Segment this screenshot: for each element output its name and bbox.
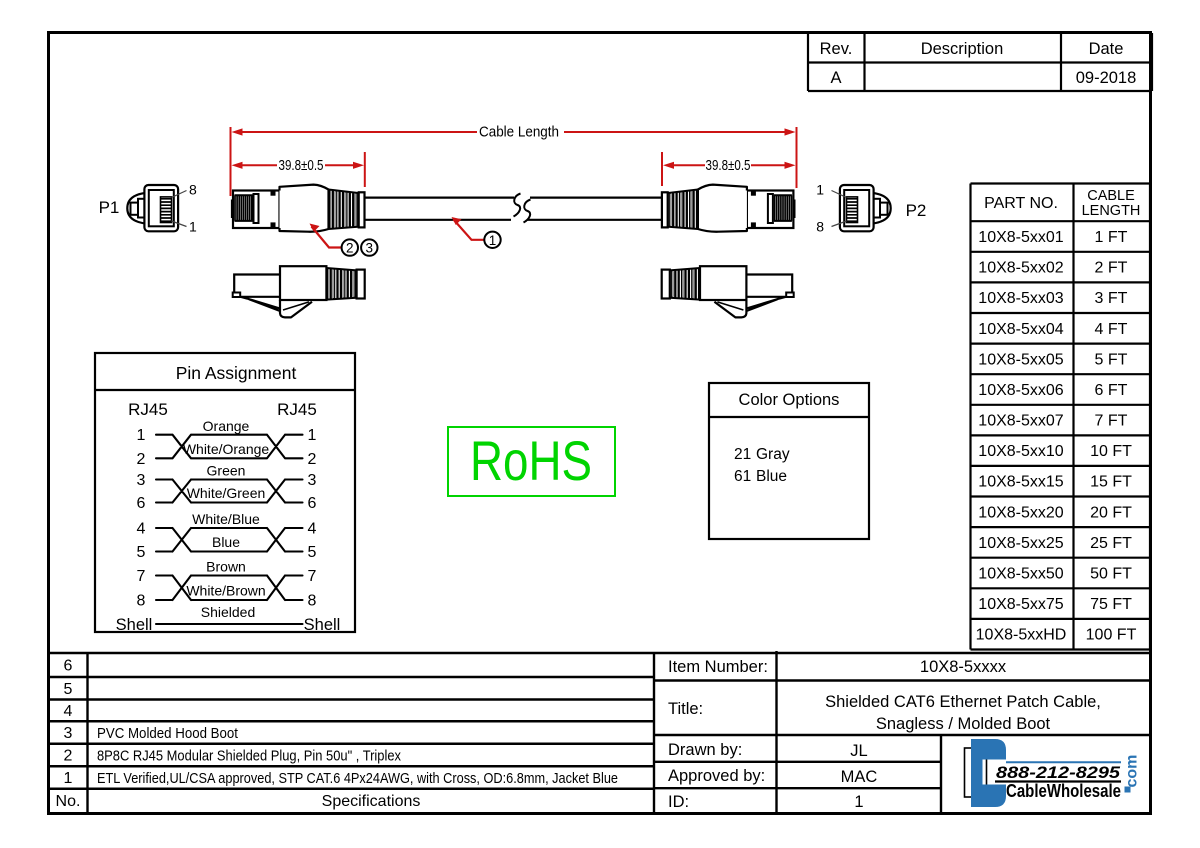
svg-text:10X8-5xx05: 10X8-5xx05 [978,351,1063,368]
svg-text:5 FT: 5 FT [1095,351,1128,368]
svg-text:White/Orange: White/Orange [183,441,270,457]
svg-text:6: 6 [64,658,73,675]
svg-text:5: 5 [308,544,317,561]
svg-text:888-212-8295: 888-212-8295 [996,764,1121,782]
svg-text:ID:: ID: [668,793,689,811]
svg-text:Gray: Gray [756,446,790,463]
svg-text:PVC Molded Hood Boot: PVC Molded Hood Boot [97,725,239,742]
svg-text:10X8-5xx25: 10X8-5xx25 [978,535,1063,552]
svg-text:Shielded CAT6 Ethernet Patch C: Shielded CAT6 Ethernet Patch Cable, [825,693,1101,711]
svg-text:61: 61 [734,468,751,485]
svg-text:10X8-5xx75: 10X8-5xx75 [978,596,1063,613]
svg-text:Drawn by:: Drawn by: [668,741,742,759]
svg-text:MAC: MAC [841,768,878,786]
svg-text:6: 6 [137,495,146,512]
svg-text:21: 21 [734,446,751,463]
svg-text:A: A [830,69,841,87]
svg-text:RJ45: RJ45 [277,400,317,419]
svg-text:10X8-5xx01: 10X8-5xx01 [978,229,1063,246]
svg-text:RoHS: RoHS [470,429,592,492]
svg-text:8: 8 [308,593,317,610]
svg-text:39.8±0.5: 39.8±0.5 [279,158,324,174]
svg-text:White/Brown: White/Brown [186,583,265,599]
svg-text:2: 2 [346,241,354,256]
svg-text:8: 8 [189,182,197,198]
svg-text:P2: P2 [906,201,927,220]
svg-text:Snagless / Molded Boot: Snagless / Molded Boot [876,715,1051,733]
svg-text:Orange: Orange [203,418,250,434]
svg-text:White/Green: White/Green [187,485,266,501]
svg-text:1: 1 [816,182,824,198]
svg-text:20 FT: 20 FT [1090,504,1132,521]
svg-text:2: 2 [308,451,317,468]
svg-text:JL: JL [850,742,867,760]
svg-text:8: 8 [137,593,146,610]
svg-text:Description: Description [921,40,1004,58]
svg-text:1: 1 [137,427,146,444]
svg-text:Color Options: Color Options [739,391,840,409]
svg-text:4: 4 [308,521,317,538]
svg-text:Green: Green [207,463,246,479]
svg-text:No.: No. [56,793,81,810]
svg-text:4 FT: 4 FT [1095,321,1128,338]
svg-text:Shell: Shell [116,616,153,634]
svg-text:Rev.: Rev. [820,40,853,58]
svg-text:10X8-5xx20: 10X8-5xx20 [978,504,1063,521]
svg-text:10X8-5xx02: 10X8-5xx02 [978,260,1063,277]
svg-text:10X8-5xxHD: 10X8-5xxHD [976,627,1067,644]
svg-text:CableWholesale: CableWholesale [1006,781,1121,801]
svg-text:3 FT: 3 FT [1095,290,1128,307]
svg-text:1 FT: 1 FT [1095,229,1128,246]
svg-text:White/Blue: White/Blue [192,511,260,527]
svg-text:10 FT: 10 FT [1090,443,1132,460]
svg-text:4: 4 [137,521,146,538]
svg-text:10X8-5xx15: 10X8-5xx15 [978,474,1063,491]
svg-text:39.8±0.5: 39.8±0.5 [706,158,751,174]
svg-text:1: 1 [64,770,73,787]
svg-text:6: 6 [308,495,317,512]
svg-text:Pin Assignment: Pin Assignment [176,363,297,383]
svg-text:10X8-5xx07: 10X8-5xx07 [978,413,1063,430]
svg-text:1: 1 [854,793,863,811]
svg-text:Title:: Title: [668,700,703,718]
svg-text:10X8-5xx03: 10X8-5xx03 [978,290,1063,307]
svg-text:100 FT: 100 FT [1086,627,1137,644]
svg-text:10X8-5xx50: 10X8-5xx50 [978,566,1063,583]
svg-text:3: 3 [64,725,73,742]
svg-text:6 FT: 6 FT [1095,382,1128,399]
svg-text:Shielded: Shielded [201,604,256,620]
svg-text:1: 1 [308,427,317,444]
svg-text:3: 3 [308,472,317,489]
svg-text:10X8-5xxxx: 10X8-5xxxx [920,658,1007,676]
svg-text:15 FT: 15 FT [1090,474,1132,491]
svg-text:3: 3 [137,472,146,489]
svg-text:P1: P1 [99,198,120,217]
svg-text:Shell: Shell [304,616,341,634]
svg-text:RJ45: RJ45 [128,400,168,419]
svg-text:7: 7 [137,568,146,585]
svg-text:com: com [1124,755,1141,788]
svg-text:CABLE: CABLE [1087,188,1135,204]
svg-text:PART NO.: PART NO. [984,195,1058,212]
svg-text:10X8-5xx04: 10X8-5xx04 [978,321,1063,338]
svg-text:8: 8 [816,219,824,235]
svg-text:50 FT: 50 FT [1090,566,1132,583]
svg-text:09-2018: 09-2018 [1076,69,1137,87]
svg-text:Blue: Blue [212,534,240,550]
svg-text:1: 1 [189,219,197,235]
svg-text:Specifications: Specifications [322,793,421,810]
svg-text:1: 1 [489,233,497,248]
svg-text:7 FT: 7 FT [1095,413,1128,430]
svg-text:Item Number:: Item Number: [668,658,768,676]
svg-text:7: 7 [308,568,317,585]
svg-text:10X8-5xx10: 10X8-5xx10 [978,443,1063,460]
svg-text:10X8-5xx06: 10X8-5xx06 [978,382,1063,399]
svg-text:8P8C RJ45 Modular Shielded Plu: 8P8C RJ45 Modular Shielded Plug, Pin 50u… [97,748,401,765]
svg-text:25 FT: 25 FT [1090,535,1132,552]
svg-text:75 FT: 75 FT [1090,596,1132,613]
svg-text:Approved by:: Approved by: [668,767,765,785]
svg-text:2: 2 [64,748,73,765]
svg-text:2: 2 [137,451,146,468]
svg-text:ETL Verified,UL/CSA approved,: ETL Verified,UL/CSA approved, STP CAT.6 … [97,770,618,787]
svg-text:3: 3 [366,241,374,256]
svg-text:Brown: Brown [206,559,246,575]
svg-text:Cable Length: Cable Length [479,124,559,141]
svg-text:2 FT: 2 FT [1095,260,1128,277]
svg-text:5: 5 [137,544,146,561]
svg-text:LENGTH: LENGTH [1082,203,1141,219]
svg-text:4: 4 [64,703,73,720]
svg-text:Blue: Blue [756,468,787,485]
svg-text:5: 5 [64,681,73,698]
svg-text:Date: Date [1089,40,1124,58]
